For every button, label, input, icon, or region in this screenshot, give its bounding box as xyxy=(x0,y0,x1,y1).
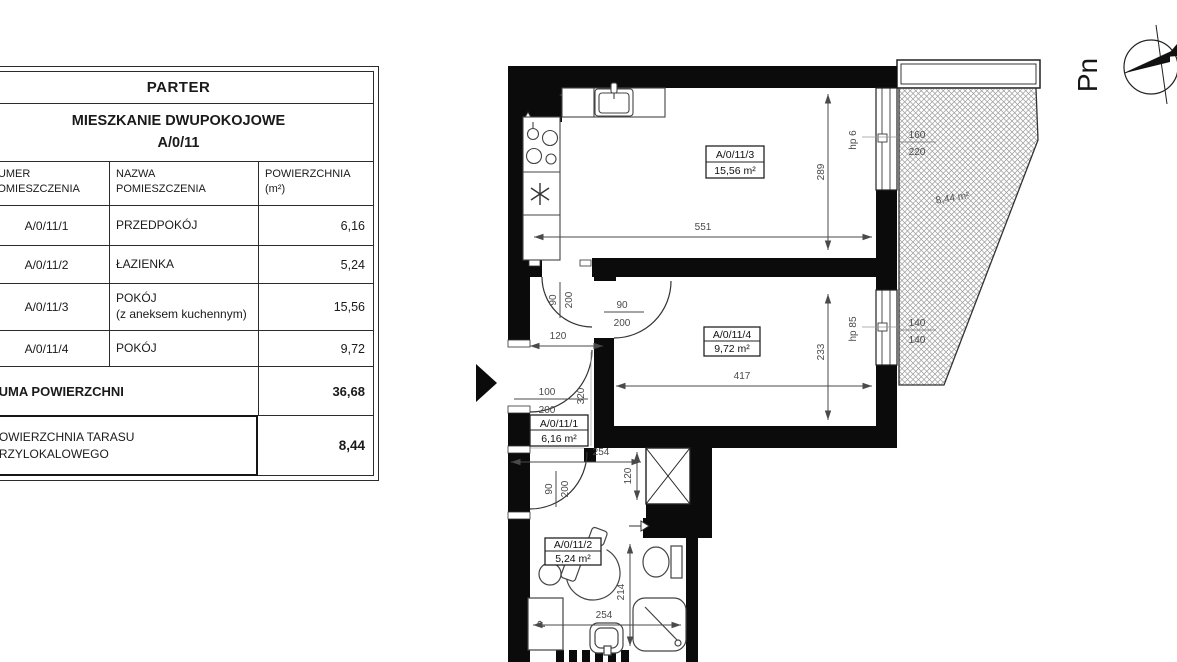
svg-text:140: 140 xyxy=(909,335,926,346)
svg-text:100: 100 xyxy=(539,387,556,398)
svg-text:A/0/11/2: A/0/11/2 xyxy=(554,539,592,551)
window2-hp-label: hp 85 xyxy=(848,316,859,341)
svg-text:90: 90 xyxy=(548,294,559,306)
svg-text:140: 140 xyxy=(909,318,926,329)
window-living xyxy=(876,88,897,190)
dim-room4-height: 233 xyxy=(816,343,827,360)
window-bedroom xyxy=(876,290,897,365)
dim-corridor-width: 254 xyxy=(593,447,610,458)
shaft xyxy=(646,448,690,504)
dim-kitchen-height: 289 xyxy=(816,163,827,180)
toilet-bowl xyxy=(643,547,669,577)
door-label-bedroom: 90 200 xyxy=(604,300,644,329)
svg-text:160: 160 xyxy=(909,130,926,141)
room-label-hall: A/0/11/1 6,16 m² xyxy=(530,415,588,446)
svg-text:220: 220 xyxy=(909,147,926,158)
compass-circle xyxy=(1124,40,1177,94)
washer-label: P xyxy=(536,620,548,627)
svg-text:90: 90 xyxy=(544,483,555,495)
svg-text:200: 200 xyxy=(614,318,631,329)
svg-text:A/0/11/4: A/0/11/4 xyxy=(713,329,751,341)
sink-tap-icon xyxy=(611,83,617,93)
compass: Pn xyxy=(1072,25,1177,104)
dim-shaft-depth: 120 xyxy=(623,467,634,484)
dim-hall-width: 120 xyxy=(550,331,567,342)
dim-bath-depth: 214 xyxy=(616,583,627,600)
svg-text:200: 200 xyxy=(560,480,571,497)
svg-text:9,72 m²: 9,72 m² xyxy=(714,343,750,355)
door-arc-bath xyxy=(530,452,587,509)
svg-text:5,24 m²: 5,24 m² xyxy=(555,553,591,565)
entrance-arrow-icon xyxy=(476,364,497,402)
window1-hp-label: hp 6 xyxy=(848,130,859,150)
dim-bath-width: 254 xyxy=(596,610,613,621)
dim-room4-width: 417 xyxy=(734,371,751,382)
dim-kitchen-width: 551 xyxy=(695,222,712,233)
room-label-bedroom: A/0/11/4 9,72 m² xyxy=(704,327,760,356)
svg-text:200: 200 xyxy=(564,291,575,308)
north-label: Pn xyxy=(1072,58,1103,92)
room-label-living: A/0/11/3 15,56 m² xyxy=(706,146,764,178)
svg-text:90: 90 xyxy=(616,300,628,311)
svg-text:15,56 m²: 15,56 m² xyxy=(714,165,756,177)
svg-text:A/0/11/1: A/0/11/1 xyxy=(540,418,578,430)
floor-plan-drawing: 8,44 m² xyxy=(0,0,1177,662)
room-label-bath: A/0/11/2 5,24 m² xyxy=(545,538,601,565)
svg-text:A/0/11/3: A/0/11/3 xyxy=(716,149,754,161)
door-label-hall-kitchen: 90 200 xyxy=(548,282,575,318)
floor-plan-page: { "table": { "title": "PARTER", "subtitl… xyxy=(0,0,1177,662)
svg-text:6,16 m²: 6,16 m² xyxy=(541,433,577,445)
toilet-icon xyxy=(671,546,682,578)
dim-hall-depth: 320 xyxy=(576,387,587,404)
